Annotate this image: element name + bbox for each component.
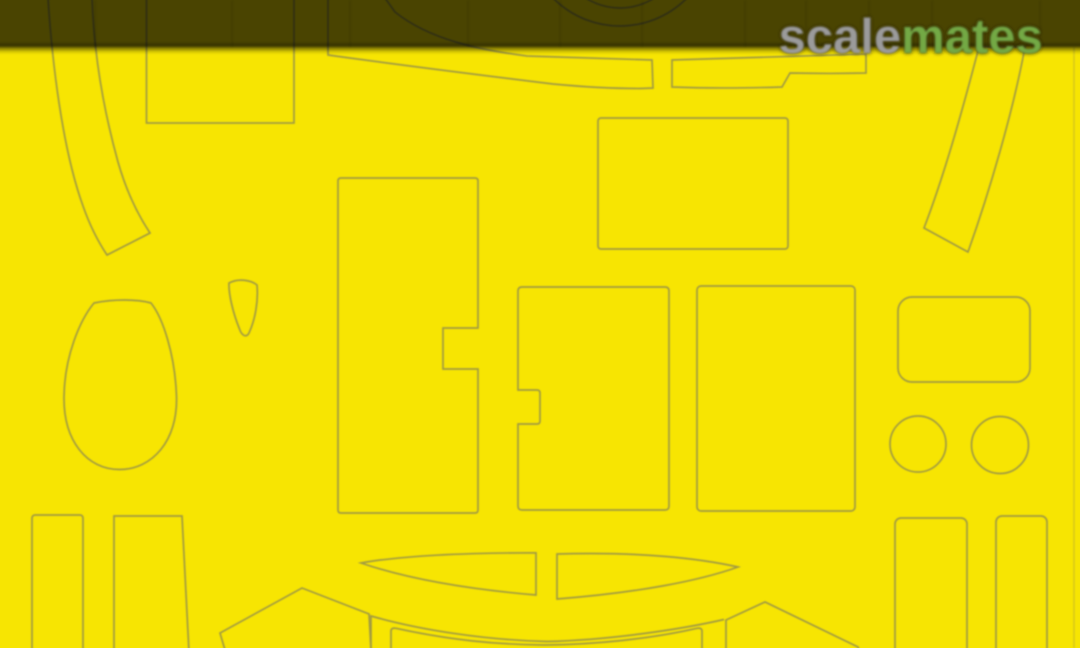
svg-text:scalemates: scalemates <box>779 10 1043 64</box>
